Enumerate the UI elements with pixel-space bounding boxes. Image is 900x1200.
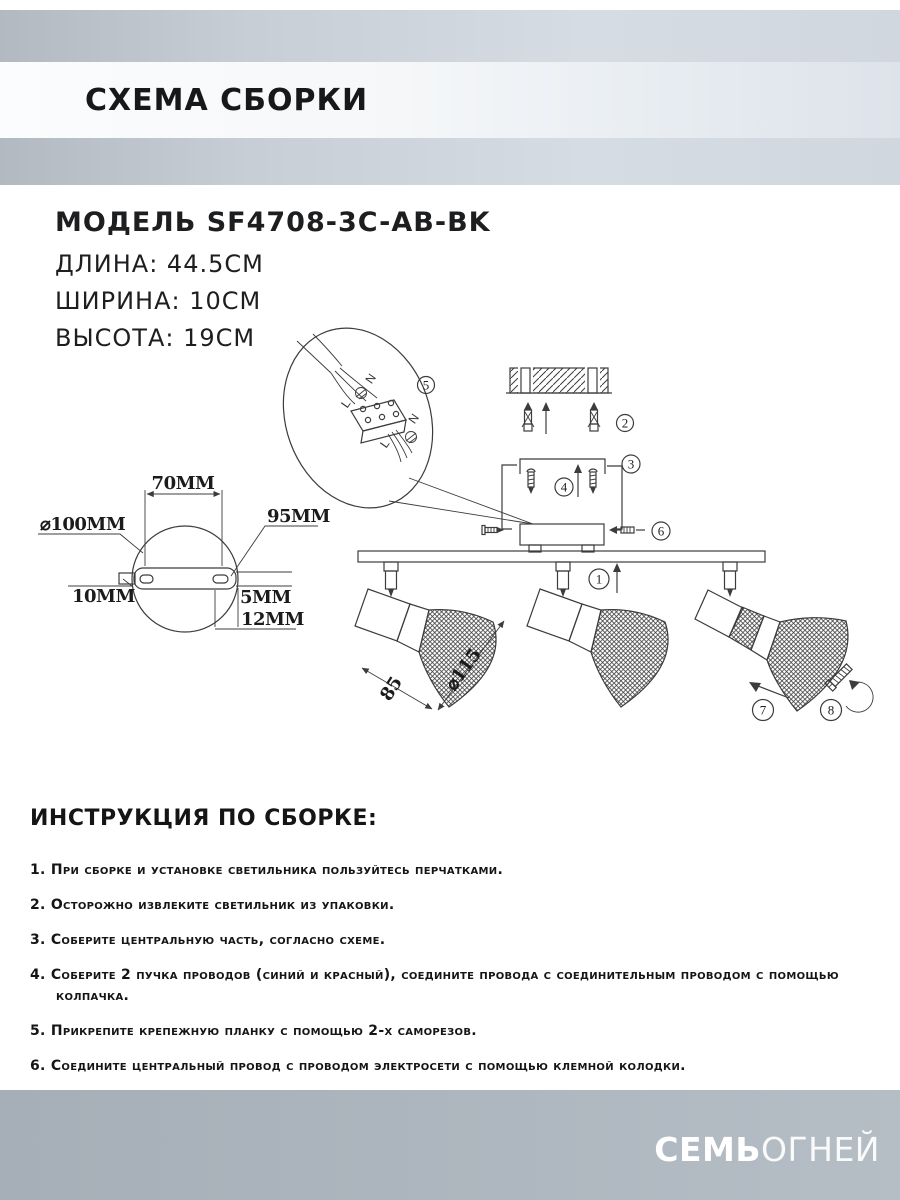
- item-number: 3.: [30, 932, 46, 948]
- dim-10mm: 10MM: [72, 586, 135, 607]
- instructions-heading: ИНСТРУКЦИЯ ПО СБОРКЕ:: [30, 806, 377, 831]
- model-number: МОДЕЛЬ SF4708-3C-AB-BK: [55, 207, 491, 238]
- plate-slot-left: [140, 575, 153, 583]
- mounting-plate: [134, 568, 236, 589]
- item-text: Соберите 2 пучка проводов (синий и красн…: [51, 967, 839, 1004]
- dim-70mm: 70MM: [152, 473, 215, 494]
- svg-text:8: 8: [828, 703, 835, 718]
- svg-text:4: 4: [561, 480, 568, 495]
- svg-text:2: 2: [622, 416, 629, 431]
- svg-text:7: 7: [760, 703, 767, 718]
- title-band: СХЕМА СБОРКИ: [0, 62, 900, 138]
- item-text: Соберите центральную часть, согласно схе…: [51, 932, 385, 948]
- header-band: СХЕМА СБОРКИ: [0, 10, 900, 185]
- dim-100mm: ⌀100MM: [40, 514, 126, 535]
- dim-5mm: 5MM: [240, 587, 291, 608]
- item-text: Прикрепите крепежную планку с помощью 2-…: [51, 1023, 477, 1039]
- instruction-item: 4. Соберите 2 пучка проводов (синий и кр…: [30, 965, 852, 1007]
- wire-label-l-bottom: L: [377, 437, 392, 451]
- item-number: 5.: [30, 1023, 46, 1039]
- side-screw-icon: [482, 526, 504, 535]
- item-number: 1.: [30, 862, 46, 878]
- wall-anchor-icon: [522, 402, 534, 431]
- brand-logo: СЕМЬОГНЕЙ: [654, 1130, 880, 1169]
- arrow-up-icon: [613, 563, 621, 593]
- wiring-detail-callout: N L N L 5: [259, 320, 533, 529]
- item-number: 4.: [30, 967, 46, 983]
- step-marker-6: 6: [652, 522, 670, 540]
- instruction-item: 3. Соберите центральную часть, согласно …: [30, 930, 852, 951]
- callout-tail: [389, 478, 533, 524]
- fixture-rail: [358, 551, 765, 562]
- plate-slot-right: [213, 575, 228, 583]
- step-marker-7: 7: [753, 700, 774, 721]
- instruction-item: 2. Осторожно извлеките светильник из упа…: [30, 895, 852, 916]
- item-text: Соедините центральный провод с проводом …: [51, 1058, 686, 1074]
- step-marker-4: 4: [555, 478, 573, 496]
- terminal-block-icon: [351, 400, 406, 443]
- wire-label-l-top: L: [338, 397, 353, 411]
- spotlight-head: [355, 589, 496, 707]
- brand-light: ОГНЕЙ: [761, 1130, 880, 1169]
- dim-12mm: 12MM: [241, 609, 304, 630]
- spot-stem: [723, 562, 737, 597]
- ceiling-mounting: 2: [506, 367, 634, 435]
- svg-text:1: 1: [596, 572, 603, 587]
- wire-label-n-top: N: [363, 371, 379, 386]
- page-title: СХЕМА СБОРКИ: [85, 83, 368, 118]
- canopy: 6: [482, 522, 670, 552]
- wall-anchor-icon: [588, 402, 600, 431]
- assembly-diagram: 70MM ⌀100MM 95MM 10MM 5MM 12MM: [20, 320, 880, 780]
- side-screw-icon: [609, 526, 645, 534]
- instructions-list: 1. При сборке и установке светильника по…: [30, 860, 852, 1091]
- step-marker-3: 3: [622, 455, 640, 473]
- mounting-bracket: 4 3: [502, 455, 640, 529]
- step-marker-8: 8: [821, 700, 842, 721]
- ground-icon: [406, 432, 418, 444]
- step-marker-2: 2: [617, 415, 634, 432]
- step-marker-5: 5: [418, 377, 435, 394]
- screw-icon: [527, 469, 535, 494]
- item-number: 2.: [30, 897, 46, 913]
- svg-text:5: 5: [423, 378, 430, 393]
- step-marker-1: 1: [589, 569, 609, 589]
- spot-stem: [556, 562, 570, 597]
- wire-label-n-bottom: N: [406, 411, 422, 426]
- callout-bubble: [259, 320, 457, 529]
- screw-icon: [589, 469, 597, 494]
- spot-stem: [384, 562, 398, 597]
- fixture-rail-assembly: 85 ⌀115 1 7: [355, 551, 873, 721]
- arrow-up-icon: [542, 402, 550, 434]
- spotlight-head: [527, 589, 668, 707]
- bracket-frame-right: [607, 466, 622, 529]
- instruction-item: 1. При сборке и установке светильника по…: [30, 860, 852, 881]
- instruction-item: 6. Соедините центральный провод с провод…: [30, 1056, 852, 1077]
- svg-text:6: 6: [658, 524, 665, 539]
- svg-text:3: 3: [628, 457, 635, 472]
- spec-width: ШИРИНА: 10СМ: [55, 287, 491, 315]
- rotate-arrow-icon: [846, 680, 873, 712]
- item-text: Осторожно извлеките светильник из упаков…: [51, 897, 395, 913]
- dim-85: 85: [376, 673, 407, 705]
- item-text: При сборке и установке светильника польз…: [51, 862, 503, 878]
- item-number: 6.: [30, 1058, 46, 1074]
- instruction-item: 5. Прикрепите крепежную планку с помощью…: [30, 1021, 852, 1042]
- brand-bold: СЕМЬ: [654, 1130, 761, 1169]
- arrow-up-icon: [574, 464, 582, 497]
- canopy-box: [520, 524, 604, 545]
- cable-icon: [297, 341, 331, 373]
- dim-95mm: 95MM: [267, 506, 330, 527]
- spotlight-head: [695, 590, 848, 711]
- spec-length: ДЛИНА: 44.5СМ: [55, 250, 491, 278]
- mounting-plate-dimension-drawing: 70MM ⌀100MM 95MM 10MM 5MM 12MM: [38, 473, 330, 632]
